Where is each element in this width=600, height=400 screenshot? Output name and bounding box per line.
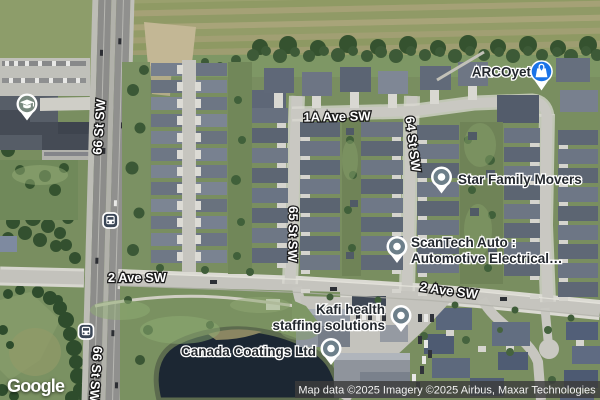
svg-text:Kafi health: Kafi health — [316, 302, 385, 317]
svg-text:Automotive Electrical…: Automotive Electrical… — [411, 251, 563, 266]
svg-text:Star Family Movers: Star Family Movers — [458, 172, 582, 187]
svg-text:staffing solutions: staffing solutions — [273, 318, 386, 333]
svg-text:2 Ave SW: 2 Ave SW — [108, 270, 167, 285]
svg-text:Google: Google — [7, 376, 65, 396]
svg-text:65 St SW: 65 St SW — [285, 206, 301, 263]
svg-text:ScanTech Auto :: ScanTech Auto : — [411, 235, 516, 250]
svg-text:Canada Coatings Ltd: Canada Coatings Ltd — [181, 344, 316, 359]
svg-text:1A Ave SW: 1A Ave SW — [303, 108, 371, 124]
svg-text:Map data ©2025 Imagery ©2025 A: Map data ©2025 Imagery ©2025 Airbus, Max… — [298, 385, 596, 397]
svg-text:ARCOyet: ARCOyet — [472, 65, 532, 80]
